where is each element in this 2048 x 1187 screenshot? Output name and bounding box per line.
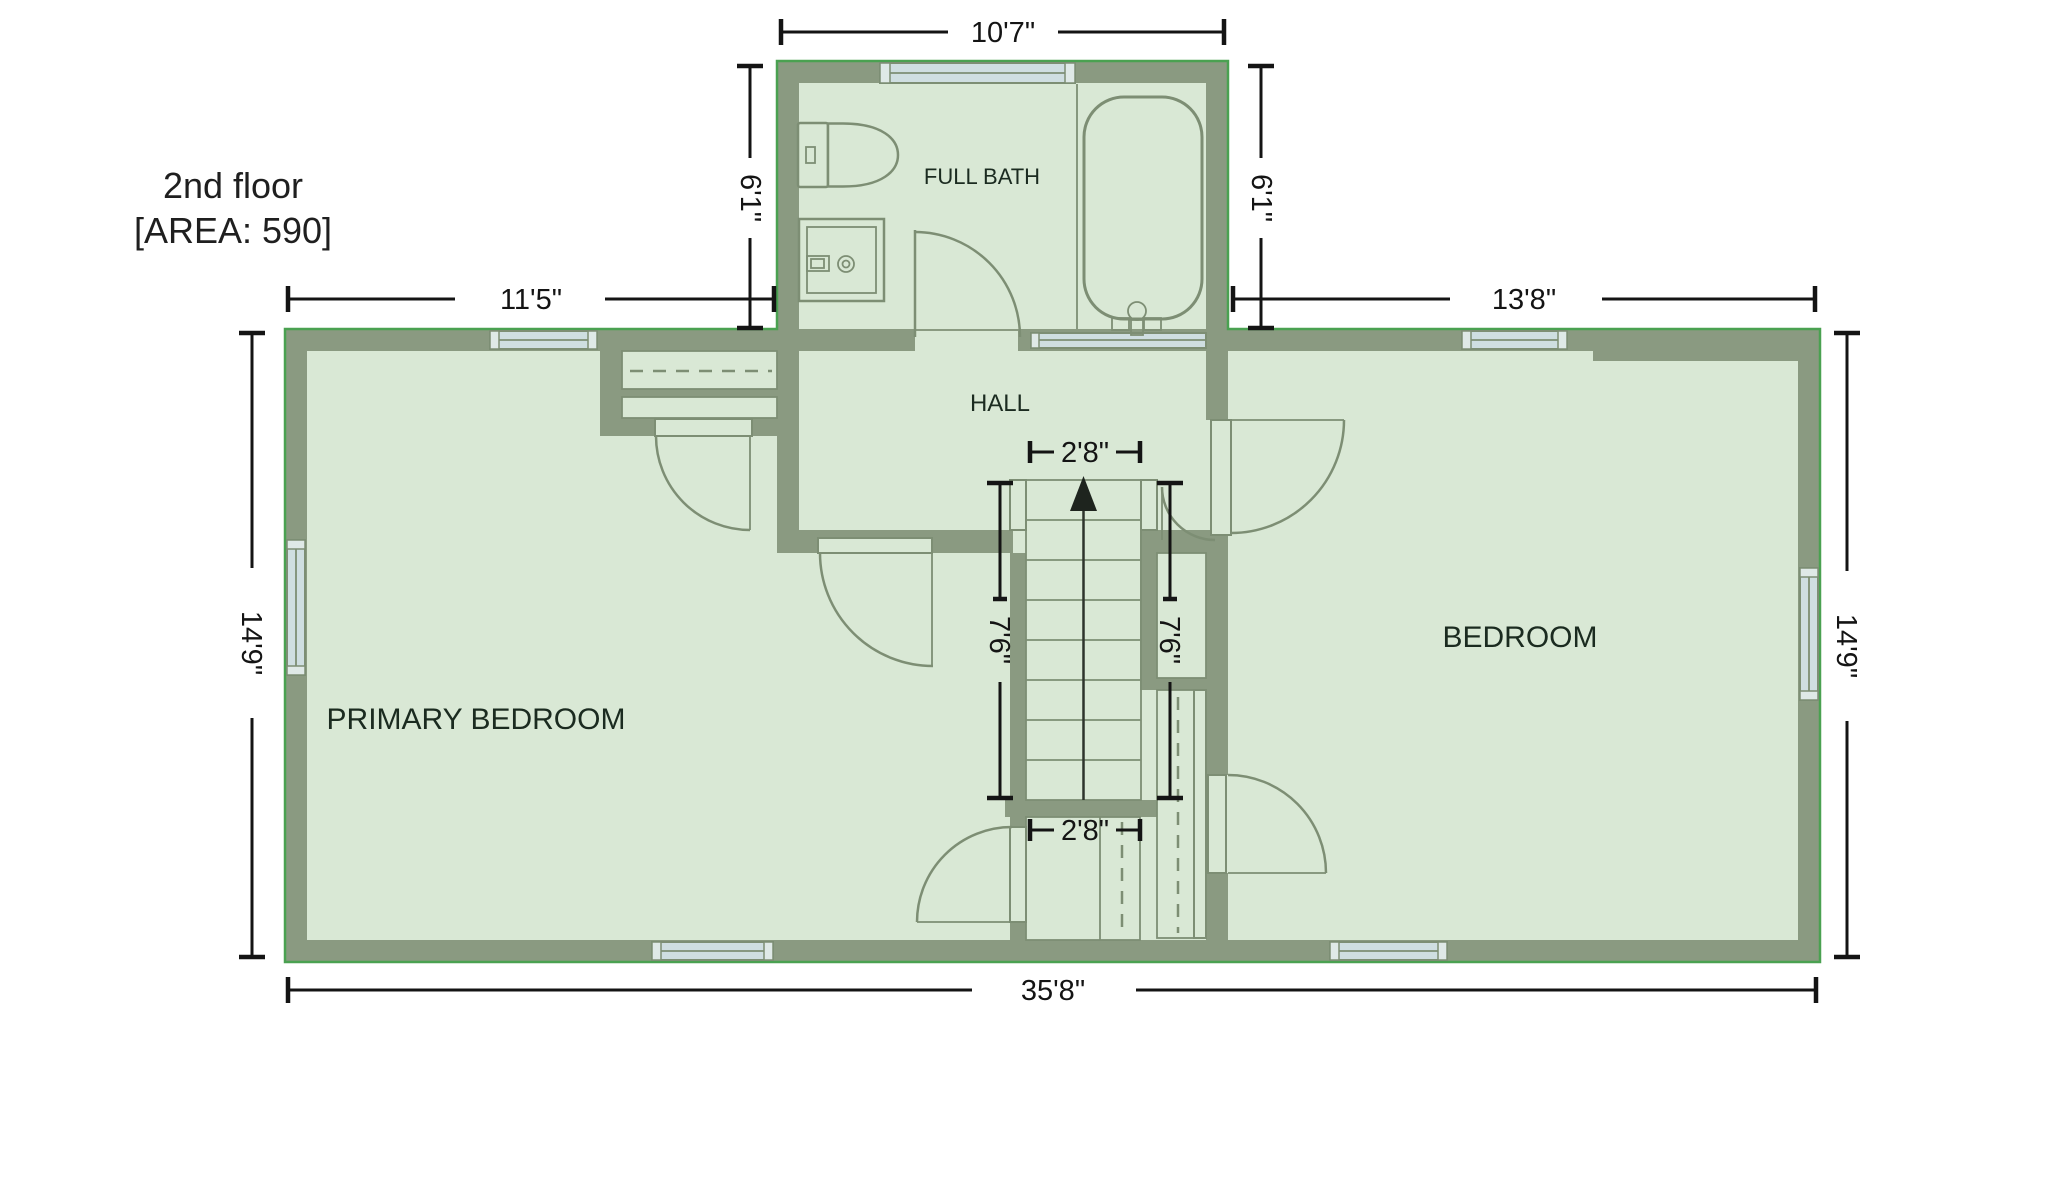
top-wall-step xyxy=(1593,351,1798,361)
window-bottom-left xyxy=(652,942,773,960)
dimension-label-stair-run-left: 7'6" xyxy=(983,616,1015,664)
room-label-primary-bedroom: PRIMARY BEDROOM xyxy=(327,703,626,736)
dim-bottom-width: 35'8" xyxy=(288,975,1816,1007)
dim-upper-right-width: 13'8" xyxy=(1233,284,1815,316)
closet-bottom-wall-b xyxy=(752,418,777,436)
dimension-label-bath-height-right: 6'1" xyxy=(1245,174,1277,222)
closet-front-panel xyxy=(1194,690,1206,938)
dim-bath-height-right: 6'1" xyxy=(1245,66,1277,328)
hall-bottom-wall-header xyxy=(818,530,932,538)
understairs-stub-bottom xyxy=(1010,922,1026,940)
bedroom-wall-top-stub xyxy=(1206,351,1228,420)
dim-bath-width: 10'7" xyxy=(781,17,1224,49)
floor-area-note: [AREA: 590] xyxy=(134,210,332,251)
bedroom-wall-bottom-stub xyxy=(1206,873,1228,940)
hall-bottom-wall-a xyxy=(777,530,818,553)
dimension-label-bath-width: 10'7" xyxy=(971,17,1035,49)
understairs-stub-top xyxy=(1010,817,1026,827)
window-bath-top xyxy=(880,63,1075,83)
dimension-label-bottom-width: 35'8" xyxy=(1021,975,1085,1007)
window-hall-bath-strip xyxy=(1031,333,1206,348)
floorplan-canvas: 10'7" 6'1" 6'1" 11'5" 13 xyxy=(0,0,2048,1182)
hall-left-wall xyxy=(777,351,799,553)
sink-vanity-icon xyxy=(799,219,884,301)
room-label-full-bath: FULL BATH xyxy=(924,164,1040,189)
closet-divider xyxy=(622,389,777,397)
dimension-label-upper-left-width: 11'5" xyxy=(500,284,562,316)
window-top-left xyxy=(490,331,597,349)
stairs-left-wall xyxy=(1010,553,1026,817)
dimension-label-right-height: 14'9" xyxy=(1830,614,1862,678)
window-top-right xyxy=(1462,331,1567,349)
room-label-hall: HALL xyxy=(970,390,1030,417)
closet-bottom-wall-a xyxy=(600,418,655,436)
window-bottom-right xyxy=(1330,942,1447,960)
toilet-icon xyxy=(798,123,898,187)
main-block xyxy=(285,61,1820,962)
bedroom-wall-mid xyxy=(1206,535,1228,775)
dimension-label-stair-width-bottom: 2'8" xyxy=(1061,815,1109,847)
stair-rail-left xyxy=(1010,480,1026,530)
floorplan-page: 10'7" 6'1" 6'1" 11'5" 13 xyxy=(0,0,2048,1182)
dim-bath-height-left: 6'1" xyxy=(734,66,766,328)
dimension-label-upper-right-width: 13'8" xyxy=(1492,284,1556,316)
floor-title: 2nd floor xyxy=(163,165,303,206)
stair-rail-right xyxy=(1141,480,1157,530)
room-label-bedroom: BEDROOM xyxy=(1442,621,1597,654)
dim-upper-left-width: 11'5" xyxy=(288,284,774,316)
dimension-label-bath-height-left: 6'1" xyxy=(734,174,766,222)
dimension-label-left-height: 14'9" xyxy=(235,611,267,675)
dimension-label-stair-run-right: 7'6" xyxy=(1153,616,1185,664)
dim-right-height: 14'9" xyxy=(1830,333,1862,957)
dimension-label-stair-width-top: 2'8" xyxy=(1061,437,1109,469)
window-left xyxy=(287,540,305,675)
window-right xyxy=(1800,568,1818,700)
dim-left-height: 14'9" xyxy=(235,333,267,957)
